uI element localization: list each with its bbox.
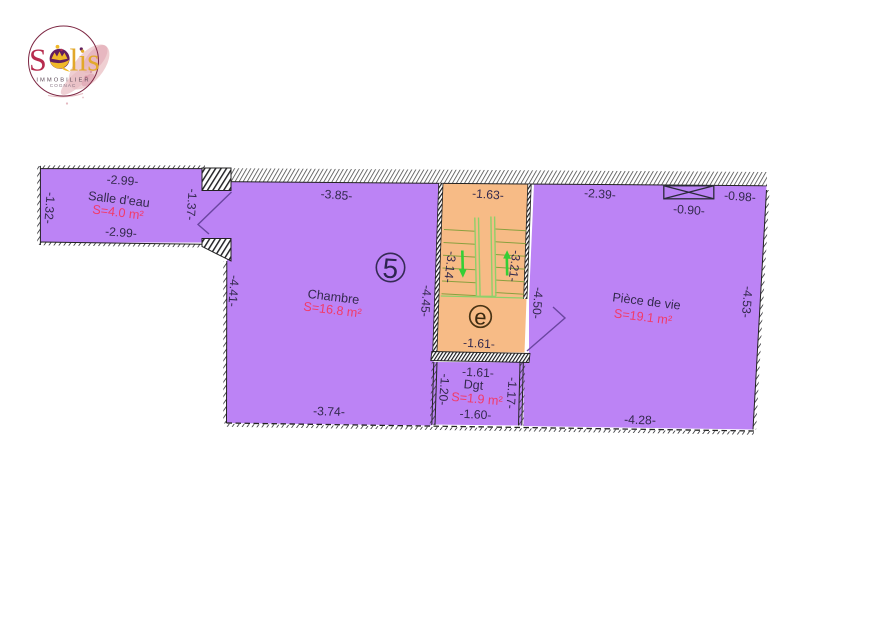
svg-text:-1.63-: -1.63- [472, 186, 505, 202]
svg-text:-2.39-: -2.39- [584, 186, 617, 202]
svg-text:-0.90-: -0.90- [673, 202, 706, 218]
svg-text:-1.60-: -1.60- [459, 407, 492, 423]
svg-text:-3.74-: -3.74- [313, 404, 345, 419]
svg-text:-2.99-: -2.99- [106, 172, 139, 188]
svg-text:lis: lis [70, 42, 100, 78]
svg-text:-1.61-: -1.61- [463, 336, 496, 352]
svg-text:-4.50-: -4.50- [529, 287, 545, 320]
svg-text:-2.99-: -2.99- [105, 224, 138, 240]
svg-text:-1.17-: -1.17- [503, 377, 519, 410]
svg-text:-4.41-: -4.41- [225, 275, 241, 308]
svg-text:-4.45-: -4.45- [418, 285, 434, 318]
svg-text:5: 5 [382, 252, 400, 284]
svg-text:S: S [29, 42, 47, 78]
svg-text:-1.37-: -1.37- [183, 188, 199, 221]
svg-text:-1.20-: -1.20- [436, 373, 452, 406]
svg-text:-1.32-: -1.32- [41, 192, 57, 225]
svg-text:-0.98-: -0.98- [724, 188, 757, 204]
svg-text:-3.85-: -3.85- [320, 187, 353, 203]
svg-text:e: e [474, 304, 488, 330]
svg-text:COGNAC: COGNAC [50, 83, 76, 89]
svg-text:-4.28-: -4.28- [624, 412, 656, 427]
svg-text:IMMOBILIER: IMMOBILIER [36, 77, 90, 83]
svg-text:-4.53-: -4.53- [739, 286, 755, 319]
